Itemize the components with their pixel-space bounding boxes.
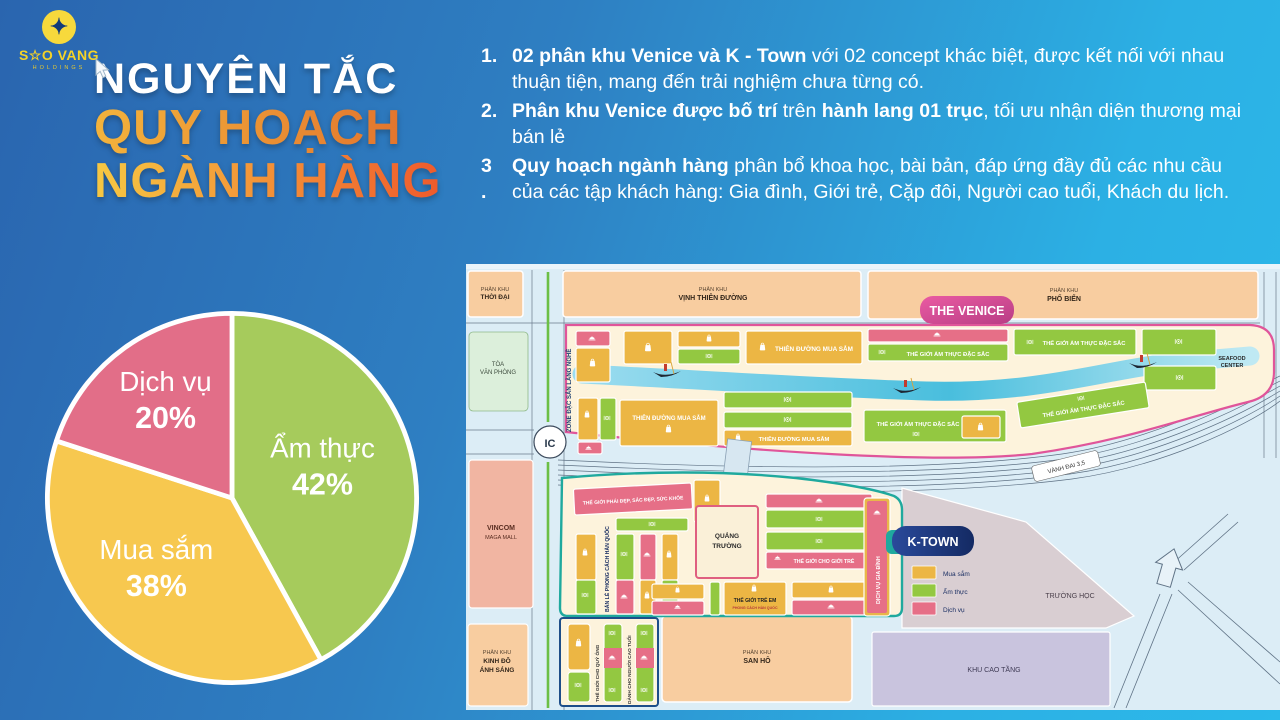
school-label: TRƯỜNG HỌC <box>1045 591 1094 600</box>
page-title: NGUYÊN TẮC QUY HOẠCH NGÀNH HÀNG <box>94 56 442 208</box>
zone-name: THỜI ĐẠI <box>480 292 509 301</box>
square-label: TRƯỜNG <box>712 541 741 550</box>
shopping-label: THIÊN ĐƯỜNG MUA SẮM <box>759 435 830 443</box>
family-service-label: DỊCH VỤ GIA ĐÌNH <box>874 556 882 604</box>
zone-prefix: PHÂN KHU <box>483 649 511 656</box>
mouse-cursor-icon <box>93 58 113 80</box>
dining-block <box>576 580 596 614</box>
youth-label: THẾ GIỚI CHO GIỚI TRẺ <box>794 557 855 565</box>
ktown-badge: K-TOWN <box>886 526 974 556</box>
zone-prefix: PHÂN KHU <box>481 286 509 293</box>
vincom-block <box>469 460 533 608</box>
central-square <box>696 506 758 578</box>
seafood-center-label: CENTER <box>1221 363 1244 369</box>
zone-name: VỊNH THIÊN ĐƯỜNG <box>679 293 749 302</box>
slice-label: Dịch vụ <box>119 366 211 397</box>
retail-block <box>568 624 590 670</box>
brand-logo: ✦ S☆O VANG HOLDINGS <box>16 10 102 71</box>
slice-value: 38% <box>126 569 187 603</box>
square-label: QUẢNG <box>715 531 739 540</box>
svg-text:THE VENICE: THE VENICE <box>929 304 1004 318</box>
legend-swatch-dich-vu <box>912 602 936 615</box>
seafood-center-label: SEAFOOD <box>1218 356 1245 362</box>
key-points-list: 1. 02 phân khu Venice và K - Town với 02… <box>481 44 1253 209</box>
legend-label: Mua sắm <box>943 569 970 578</box>
zone-vinh-thien-duong <box>563 271 861 317</box>
vincom-label: VINCOM <box>487 525 515 532</box>
brand-subname: HOLDINGS <box>16 65 102 71</box>
korean-retail-label: BÁN LẺ PHONG CÁCH HÀN QUỐC <box>604 526 611 612</box>
shopping-paradise-block <box>620 400 718 446</box>
zone-name: KINH ĐÔ <box>483 656 510 665</box>
service-block <box>868 329 1008 342</box>
zone-name: SAN HÔ <box>743 656 771 665</box>
item-number: 1. <box>481 44 512 96</box>
kids-sublabel: PHONG CÁCH HÀN QUỐC <box>732 605 778 610</box>
item-text: Quy hoạch ngành hàng phân bổ khoa học, b… <box>512 154 1253 206</box>
title-line-1: NGUYÊN TẮC <box>94 56 442 102</box>
slide: ✦ S☆O VANG HOLDINGS NGUYÊN TẮC QUY HOẠCH… <box>0 0 1280 720</box>
zone-name: ÁNH SÁNG <box>480 665 515 674</box>
food-label: THẾ GIỚI ẨM THỰC ĐẶC SẮC <box>907 350 991 358</box>
legend-label: Dịch vụ <box>943 607 965 614</box>
food-label: THẾ GIỚI ẨM THỰC ĐẶC SẮC <box>1043 339 1127 347</box>
office-label: VĂN PHÒNG <box>480 369 516 376</box>
brand-name: S☆O VANG <box>16 47 102 64</box>
retail-block <box>576 534 596 580</box>
title-line-3: NGÀNH HÀNG <box>94 155 442 208</box>
zone-kinh-do-anh-sang <box>468 624 528 706</box>
item-number: 2. <box>481 99 512 151</box>
list-item: 1. 02 phân khu Venice và K - Town với 02… <box>481 44 1253 96</box>
slice-label: Ẩm thực <box>270 432 375 463</box>
service-block <box>640 534 656 580</box>
list-item: 2. Phân khu Venice được bố trí trên hành… <box>481 99 1253 151</box>
service-block <box>792 600 872 615</box>
zone-prefix: PHÂN KHU <box>1050 287 1078 294</box>
venice-badge: THE VENICE <box>920 296 1014 324</box>
list-item: 3 . Quy hoạch ngành hàng phân bổ khoa họ… <box>481 154 1253 206</box>
star-logo-icon: ✦ <box>42 10 76 44</box>
shopping-label: THIÊN ĐƯỜNG MUA SẮM <box>775 344 853 353</box>
legend-label: Ẩm thực <box>943 587 968 596</box>
svg-text:K-TOWN: K-TOWN <box>907 535 958 549</box>
retail-block <box>578 398 598 440</box>
kids-label: THẾ GIỚI TRẺ EM <box>734 596 777 604</box>
map-top-edge <box>466 264 1280 269</box>
dining-block <box>710 582 720 615</box>
legend-swatch-am-thuc <box>912 584 936 597</box>
zone-prefix: PHÂN KHU <box>743 649 771 656</box>
legend-swatch-mua-sam <box>912 566 936 579</box>
shopping-label: THIÊN ĐƯỜNG MUA SẮM <box>632 414 705 422</box>
dining-block <box>616 534 634 580</box>
master-plan-map: IC ZONE ĐẶC SẢN LÀNG NGHỀ <box>466 264 1280 710</box>
office-label: TÒA <box>492 361 504 368</box>
item-number: 3 . <box>481 154 512 206</box>
beauty-world-block: THẾ GIỚI PHÁI ĐẸP, SẮC ĐẸP, SỨC KHỎE <box>573 483 692 515</box>
title-line-2: QUY HOẠCH <box>94 102 442 155</box>
slice-value: 20% <box>135 401 196 435</box>
item-text: 02 phân khu Venice và K - Town với 02 co… <box>512 44 1253 96</box>
food-label: THẾ GIỚI ẨM THỰC ĐẶC SẮC <box>877 420 961 428</box>
vincom-label: MAGA MALL <box>485 535 517 541</box>
item-text: Phân khu Venice được bố trí trên hành la… <box>512 99 1253 151</box>
ic-label: IC <box>545 438 556 450</box>
pie-chart: Ẩm thực 42% Mua sắm 38% Dịch vụ 20% <box>40 306 424 690</box>
slice-label: Mua sắm <box>99 534 213 565</box>
zone-dac-san-label: ZONE ĐẶC SẢN LÀNG NGHỀ <box>566 349 573 432</box>
dining-block <box>568 672 590 702</box>
slice-value: 42% <box>292 467 353 501</box>
zone-prefix: PHÂN KHU <box>699 286 727 293</box>
